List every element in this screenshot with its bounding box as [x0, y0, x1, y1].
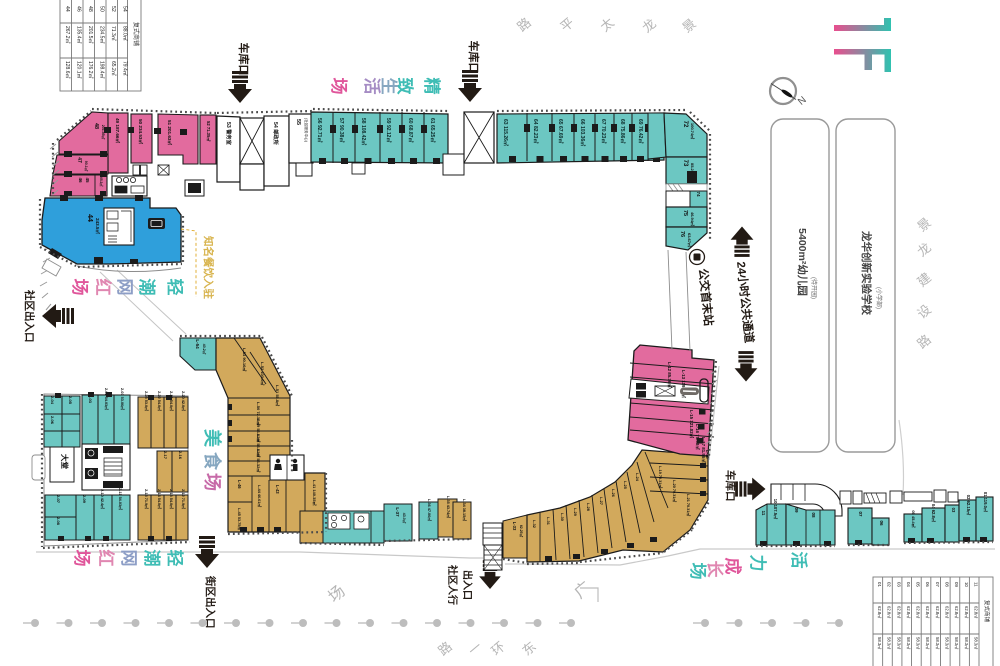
svg-text:66 103.36㎡: 66 103.36㎡: [579, 119, 586, 146]
svg-text:59 92.12㎡: 59 92.12㎡: [385, 118, 392, 142]
svg-text:01: 01: [877, 582, 882, 587]
svg-text:11: 11: [973, 582, 978, 587]
svg-text:网: 网: [115, 279, 134, 296]
svg-text:L-47 56.32㎡: L-47 56.32㎡: [256, 449, 262, 472]
svg-text:43.0㎡: 43.0㎡: [402, 513, 407, 524]
svg-text:08: 08: [944, 582, 949, 587]
svg-text:路: 路: [435, 639, 455, 659]
svg-text:58.3㎡: 58.3㎡: [906, 637, 912, 650]
svg-text:58.3㎡: 58.3㎡: [916, 637, 922, 650]
svg-text:55: 55: [295, 119, 301, 125]
svg-text:生: 生: [379, 78, 399, 95]
svg-text:2-13 54.0㎡: 2-13 54.0㎡: [169, 489, 174, 509]
svg-text:44: 44: [86, 214, 93, 222]
svg-text:58.3㎡: 58.3㎡: [935, 637, 941, 650]
svg-text:(社区服务中心): (社区服务中心): [304, 118, 309, 142]
svg-text:2-05: 2-05: [68, 396, 73, 405]
svg-text:10: 10: [964, 582, 969, 587]
svg-text:79.4㎡: 79.4㎡: [122, 61, 129, 76]
svg-text:120.1㎡: 120.1㎡: [76, 61, 83, 79]
svg-text:46: 46: [78, 177, 83, 183]
svg-text:62.25㎡: 62.25㎡: [519, 525, 524, 538]
svg-text:L-28: L-28: [586, 503, 590, 511]
svg-text:88.0㎡: 88.0㎡: [122, 26, 129, 41]
svg-text:58.3㎡: 58.3㎡: [954, 637, 960, 650]
svg-text:复式商铺: 复式商铺: [983, 600, 991, 623]
svg-text:精: 精: [422, 78, 442, 95]
svg-text:场: 场: [688, 563, 707, 580]
svg-text:2-12 71.9㎡: 2-12 71.9㎡: [181, 489, 186, 509]
svg-text:大堂: 大堂: [60, 454, 70, 469]
svg-text:03: 03: [896, 582, 901, 587]
svg-text:车库口: 车库口: [724, 470, 737, 502]
svg-text:62.8㎡: 62.8㎡: [925, 606, 931, 619]
svg-text:62.8㎡: 62.8㎡: [916, 606, 922, 619]
svg-text:公交首末站: 公交首末站: [696, 268, 716, 327]
svg-text:176.2㎡: 176.2㎡: [87, 61, 94, 79]
svg-text:L-32: L-32: [532, 520, 536, 528]
svg-text:74: 74: [696, 191, 701, 197]
svg-text:社区人行: 社区人行: [446, 564, 459, 605]
svg-text:40.2㎡: 40.2㎡: [202, 344, 207, 355]
svg-text:63.67㎡: 63.67㎡: [687, 233, 693, 247]
svg-text:49 187.66㎡: 49 187.66㎡: [115, 118, 121, 143]
svg-text:(待开园): (待开园): [810, 277, 818, 299]
svg-text:76: 76: [679, 231, 685, 237]
svg-text:07: 07: [935, 582, 940, 587]
svg-text:场: 场: [202, 473, 222, 491]
svg-text:67 70.23㎡: 67 70.23㎡: [600, 119, 607, 143]
svg-text:L-21 70.31㎡: L-21 70.31㎡: [686, 494, 691, 516]
svg-text:2-14 54.0㎡: 2-14 54.0㎡: [157, 489, 162, 509]
svg-text:58.3㎡: 58.3㎡: [944, 637, 950, 650]
svg-text:太: 太: [597, 15, 617, 35]
svg-text:02 62.15㎡: 02 62.15㎡: [966, 495, 972, 516]
svg-text:07: 07: [858, 511, 863, 517]
svg-text:75: 75: [682, 210, 688, 216]
svg-text:L-34 38.15㎡: L-34 38.15㎡: [462, 499, 467, 521]
svg-text:网: 网: [119, 550, 138, 567]
svg-text:135.4㎡: 135.4㎡: [76, 26, 83, 44]
svg-text:力: 力: [748, 555, 768, 572]
svg-text:62.8㎡: 62.8㎡: [935, 606, 941, 619]
svg-text:62.8㎡: 62.8㎡: [954, 606, 960, 619]
svg-text:复式商铺: 复式商铺: [132, 22, 140, 46]
svg-text:L-51 55.8㎡: L-51 55.8㎡: [275, 385, 281, 406]
svg-text:L-27: L-27: [599, 497, 603, 505]
svg-text:48: 48: [93, 123, 99, 129]
svg-text:街区出入口: 街区出入口: [204, 575, 217, 629]
svg-text:51 201.63㎡: 51 201.63㎡: [167, 120, 173, 145]
svg-text:44: 44: [64, 6, 70, 12]
svg-text:2-06: 2-06: [50, 416, 55, 425]
svg-text:05 45.4㎡: 05 45.4㎡: [911, 510, 917, 527]
svg-text:一: 一: [465, 639, 485, 659]
svg-text:11: 11: [761, 511, 766, 516]
svg-text:06: 06: [925, 582, 930, 587]
svg-text:62.8㎡: 62.8㎡: [877, 606, 883, 619]
svg-text:场: 场: [329, 78, 348, 95]
svg-text:09: 09: [954, 582, 959, 587]
svg-text:128.6㎡: 128.6㎡: [64, 61, 71, 79]
svg-text:73: 73: [682, 160, 688, 167]
svg-text:出入口: 出入口: [461, 570, 474, 600]
svg-text:2-01 53.06㎡: 2-01 53.06㎡: [120, 388, 125, 410]
svg-text:58 108.42㎡: 58 108.42㎡: [360, 118, 367, 145]
svg-text:06: 06: [879, 520, 884, 526]
svg-text:L-15 121.02㎡: L-15 121.02㎡: [689, 410, 695, 439]
svg-text:58.3㎡: 58.3㎡: [925, 637, 931, 650]
svg-text:景: 景: [679, 16, 699, 36]
svg-text:L-41 140.35㎡: L-41 140.35㎡: [312, 480, 318, 506]
svg-text:03: 03: [951, 508, 956, 513]
svg-text:54 邮政所: 54 邮政所: [272, 122, 280, 146]
svg-text:车库口: 车库口: [237, 43, 251, 76]
svg-text:建: 建: [914, 270, 934, 290]
svg-text:52: 52: [110, 6, 116, 12]
svg-text:场: 场: [325, 582, 349, 606]
svg-text:04 62.8㎡: 04 62.8㎡: [931, 504, 937, 523]
svg-text:04: 04: [906, 582, 911, 587]
svg-text:2-22 54.0㎡: 2-22 54.0㎡: [157, 391, 162, 411]
svg-text:2-15 71.9㎡: 2-15 71.9㎡: [144, 489, 149, 509]
svg-text:2-02 54.03㎡: 2-02 54.03㎡: [104, 388, 109, 410]
svg-text:62.8㎡: 62.8㎡: [964, 606, 970, 619]
svg-text:N: N: [796, 95, 809, 108]
svg-text:01 119.0㎡: 01 119.0㎡: [983, 492, 989, 513]
svg-text:轻: 轻: [165, 279, 185, 296]
svg-text:5400m²幼儿园: 5400m²幼儿园: [796, 228, 809, 296]
svg-text:路: 路: [914, 332, 934, 352]
svg-text:58.3㎡: 58.3㎡: [896, 637, 902, 650]
svg-text:活: 活: [789, 552, 809, 569]
svg-text:L-29: L-29: [573, 508, 577, 516]
svg-text:58.3㎡: 58.3㎡: [964, 637, 970, 650]
svg-text:50: 50: [99, 6, 105, 12]
svg-text:2-21 54.0㎡: 2-21 54.0㎡: [169, 391, 174, 411]
svg-text:68 75.86㎡: 68 75.86㎡: [619, 119, 626, 143]
svg-text:龙华创新实验学校: 龙华创新实验学校: [860, 230, 873, 315]
svg-text:234.5㎡: 234.5㎡: [99, 26, 106, 44]
svg-text:L-37: L-37: [395, 507, 400, 517]
svg-text:车库口: 车库口: [467, 41, 481, 74]
svg-text:48: 48: [87, 6, 93, 12]
svg-text:L-30: L-30: [560, 513, 564, 521]
svg-text:58.3㎡: 58.3㎡: [877, 637, 883, 650]
svg-text:267.2㎡: 267.2㎡: [64, 26, 71, 44]
svg-text:57 90.38㎡: 57 90.38㎡: [338, 118, 345, 142]
svg-text:60 68.87㎡: 60 68.87㎡: [407, 118, 414, 142]
svg-text:243.5㎡: 243.5㎡: [95, 218, 101, 234]
svg-text:美: 美: [202, 429, 223, 447]
svg-text:L-52 103.0㎡: L-52 103.0㎡: [260, 362, 266, 385]
svg-text:62.8㎡: 62.8㎡: [896, 606, 902, 619]
svg-text:长: 长: [705, 561, 725, 579]
svg-text:L-44 46.61㎡: L-44 46.61㎡: [257, 485, 262, 507]
svg-text:24小时公共通道: 24小时公共通道: [734, 261, 757, 344]
svg-text:50 234.53㎡: 50 234.53㎡: [138, 119, 144, 144]
svg-text:2-11 54.03㎡: 2-11 54.03㎡: [118, 488, 123, 510]
svg-text:L-36 47.06㎡: L-36 47.06㎡: [427, 499, 432, 521]
svg-text:(小学部): (小学部): [875, 287, 883, 309]
svg-text:05: 05: [916, 582, 921, 587]
svg-text:56 92.71㎡: 56 92.71㎡: [316, 118, 323, 142]
svg-text:90.1㎡: 90.1㎡: [84, 161, 89, 172]
svg-text:路: 路: [514, 15, 534, 35]
svg-text:L-31: L-31: [546, 517, 550, 525]
svg-text:69 76.42㎡: 69 76.42㎡: [637, 119, 644, 143]
svg-text:198.4㎡: 198.4㎡: [99, 61, 106, 79]
svg-text:65.2㎡: 65.2㎡: [110, 61, 117, 76]
svg-text:L-33: L-33: [512, 522, 517, 531]
svg-text:L-43: L-43: [275, 485, 280, 494]
svg-text:活: 活: [362, 78, 382, 95]
svg-text:2-10 42.4㎡: 2-10 42.4㎡: [100, 489, 105, 509]
svg-text:10 107.5㎡: 10 107.5㎡: [773, 499, 779, 520]
svg-text:场: 场: [72, 550, 91, 567]
svg-text:潮: 潮: [142, 550, 162, 567]
svg-text:46: 46: [76, 6, 82, 12]
svg-text:2-09: 2-09: [82, 495, 87, 504]
svg-text:2-08: 2-08: [56, 517, 61, 526]
svg-text:61 65.25㎡: 61 65.25㎡: [429, 118, 436, 142]
svg-text:成: 成: [723, 558, 743, 575]
svg-text:潮: 潮: [137, 279, 157, 296]
svg-text:广: 广: [571, 578, 595, 602]
svg-text:L-19 70.31㎡: L-19 70.31㎡: [658, 466, 663, 488]
svg-text:食: 食: [202, 451, 223, 471]
svg-text:63 115.26㎡: 63 115.26㎡: [502, 119, 509, 146]
svg-text:L-46: L-46: [237, 480, 242, 489]
svg-text:54: 54: [122, 6, 128, 12]
svg-text:设: 设: [914, 302, 934, 322]
svg-text:201.5㎡: 201.5㎡: [87, 26, 94, 44]
svg-text:2-23 53.0㎡: 2-23 53.0㎡: [144, 391, 149, 411]
svg-text:东: 东: [519, 639, 539, 659]
svg-text:100.74㎡: 100.74㎡: [690, 123, 696, 139]
svg-text:场: 场: [70, 279, 89, 296]
svg-text:社区出入口: 社区出入口: [23, 289, 36, 343]
svg-text:62.8㎡: 62.8㎡: [906, 606, 912, 619]
svg-text:71.3㎡: 71.3㎡: [110, 26, 117, 41]
svg-text:环: 环: [488, 639, 508, 659]
svg-text:62.8㎡: 62.8㎡: [887, 606, 893, 619]
svg-text:L-25: L-25: [623, 481, 627, 489]
svg-text:2-20 42.0㎡: 2-20 42.0㎡: [181, 391, 186, 411]
svg-text:龙: 龙: [639, 16, 659, 36]
svg-text:02: 02: [887, 582, 892, 587]
svg-text:L-26: L-26: [611, 489, 615, 497]
svg-text:L-24: L-24: [635, 473, 639, 482]
svg-text:72: 72: [682, 121, 688, 128]
svg-text:62.8㎡: 62.8㎡: [944, 606, 950, 619]
svg-text:64 82.23㎡: 64 82.23㎡: [532, 119, 539, 143]
svg-text:2-17: 2-17: [163, 451, 168, 460]
svg-text:47: 47: [76, 157, 82, 163]
svg-text:2-16: 2-16: [178, 451, 183, 460]
svg-text:2-04: 2-04: [50, 396, 55, 405]
svg-text:L-53 90.16㎡: L-53 90.16㎡: [242, 348, 248, 371]
svg-text:L-12 85.36㎡: L-12 85.36㎡: [667, 362, 673, 388]
svg-text:L-35 43.74㎡: L-35 43.74㎡: [446, 496, 451, 518]
svg-text:2-07: 2-07: [56, 495, 61, 504]
svg-text:46.94㎡: 46.94㎡: [690, 212, 696, 226]
svg-text:景: 景: [914, 215, 934, 235]
svg-text:58.3㎡: 58.3㎡: [887, 637, 893, 650]
svg-text:平: 平: [557, 15, 577, 35]
svg-text:红: 红: [96, 550, 116, 567]
svg-text:62.8㎡: 62.8㎡: [973, 606, 979, 619]
svg-text:知名餐饮入驻: 知名餐饮入驻: [202, 236, 215, 299]
svg-text:08: 08: [811, 512, 816, 518]
svg-text:58.3㎡: 58.3㎡: [973, 637, 979, 650]
svg-text:65 67.69㎡: 65 67.69㎡: [557, 119, 564, 143]
svg-text:52 71.35㎡: 52 71.35㎡: [206, 121, 212, 142]
svg-text:45: 45: [85, 177, 90, 183]
svg-text:53 警务室: 53 警务室: [225, 122, 233, 145]
svg-text:L-20 70.31㎡: L-20 70.31㎡: [672, 480, 677, 502]
svg-text:龙: 龙: [914, 240, 934, 260]
svg-text:轻: 轻: [165, 550, 185, 567]
svg-text:09: 09: [794, 507, 799, 513]
svg-text:红: 红: [93, 279, 113, 296]
svg-text:L-54: L-54: [195, 339, 200, 349]
